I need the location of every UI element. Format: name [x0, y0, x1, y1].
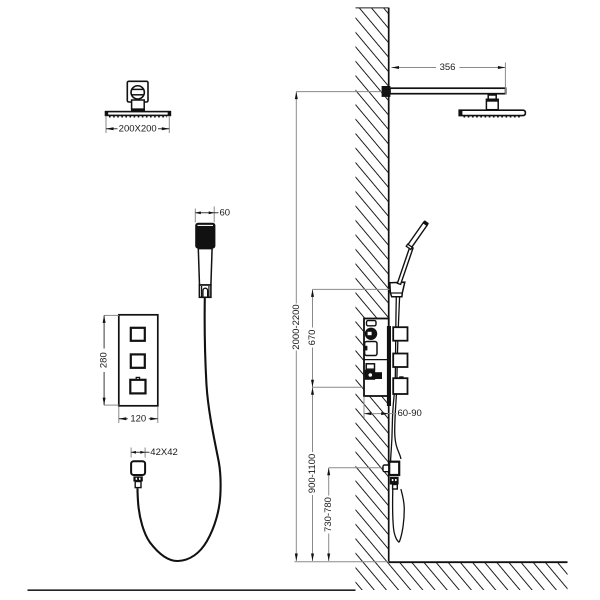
svg-text:60: 60 — [220, 207, 231, 218]
svg-text:60-90: 60-90 — [398, 408, 422, 419]
svg-text:280: 280 — [99, 352, 110, 368]
svg-text:200X200: 200X200 — [119, 123, 157, 134]
svg-text:42X42: 42X42 — [150, 447, 177, 458]
svg-text:730-780: 730-780 — [323, 497, 334, 532]
svg-text:2000-2200: 2000-2200 — [291, 304, 302, 349]
svg-text:356: 356 — [440, 62, 456, 73]
svg-text:900-1100: 900-1100 — [307, 454, 318, 493]
svg-text:120: 120 — [130, 413, 146, 424]
svg-text:670: 670 — [307, 330, 318, 346]
